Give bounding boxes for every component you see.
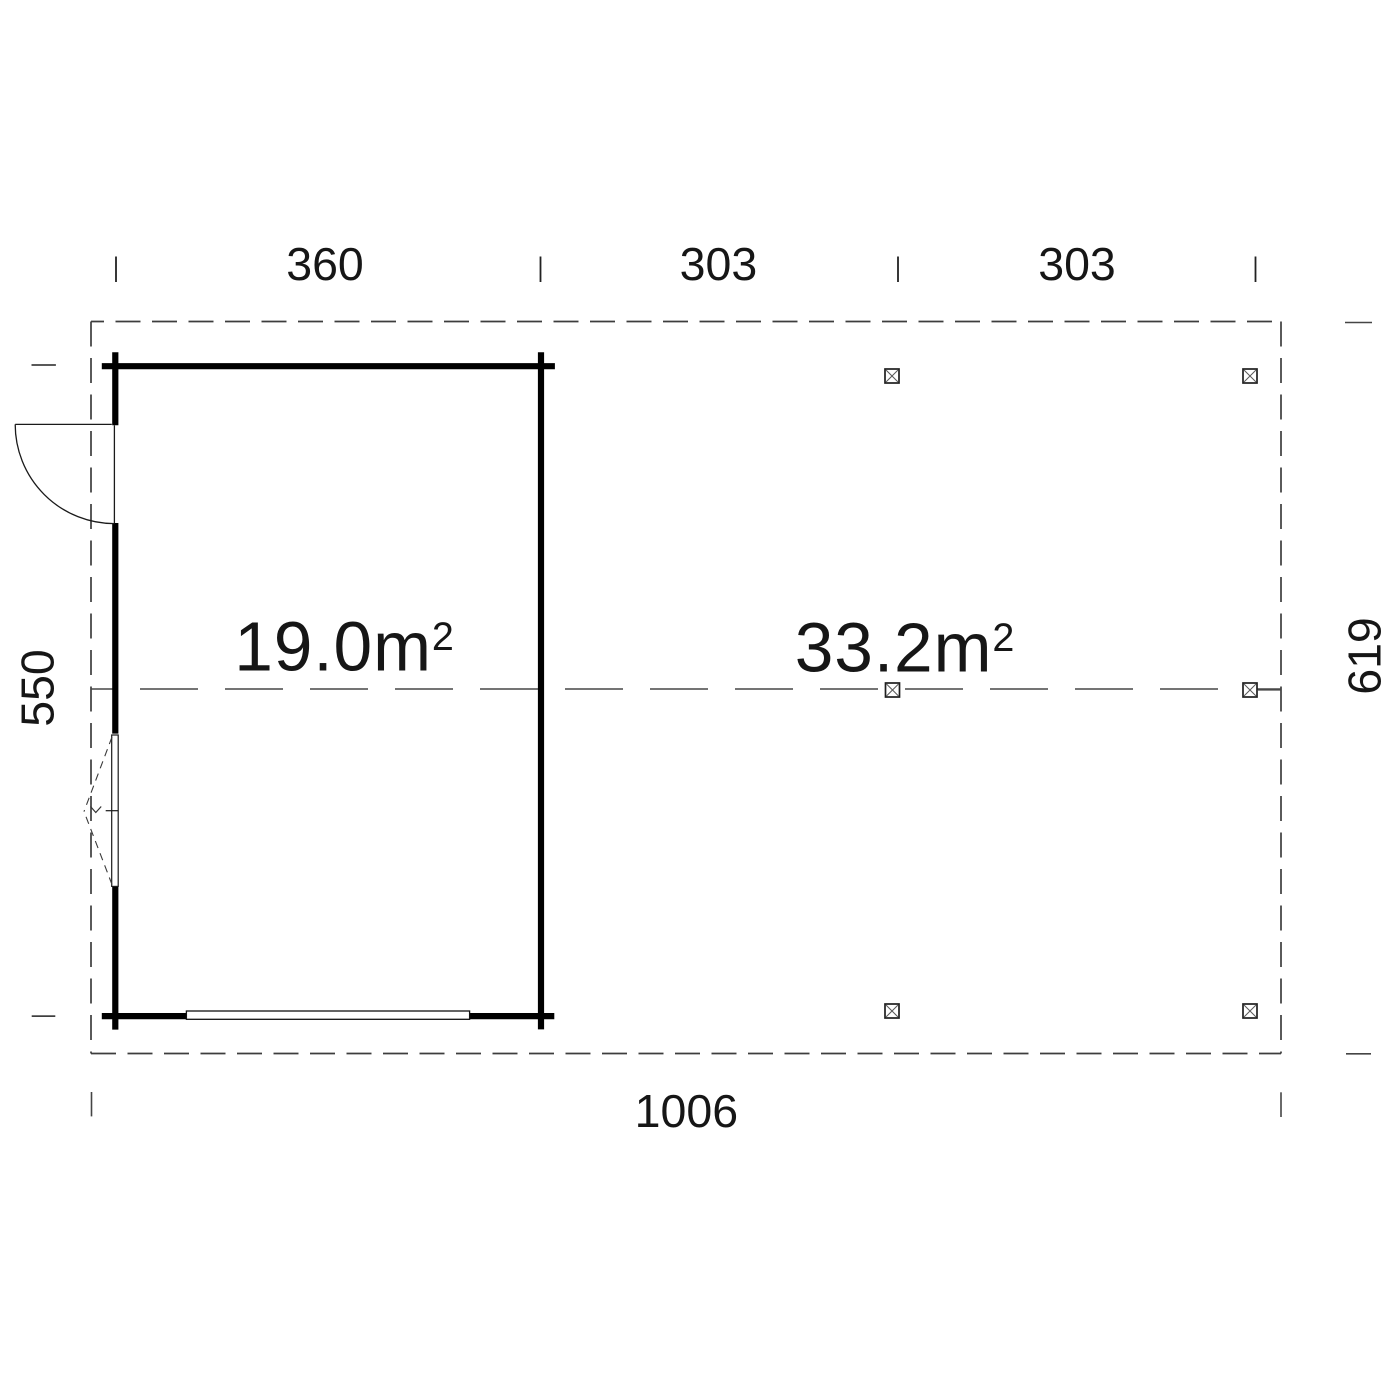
svg-text:19.0m2: 19.0m2 [234,608,455,686]
svg-text:303: 303 [1038,238,1116,290]
svg-text:1006: 1006 [635,1085,738,1137]
svg-text:33.2m2: 33.2m2 [795,609,1016,687]
svg-text:550: 550 [12,649,64,727]
svg-text:360: 360 [286,238,364,290]
svg-text:619: 619 [1339,617,1391,695]
svg-text:303: 303 [680,238,758,290]
